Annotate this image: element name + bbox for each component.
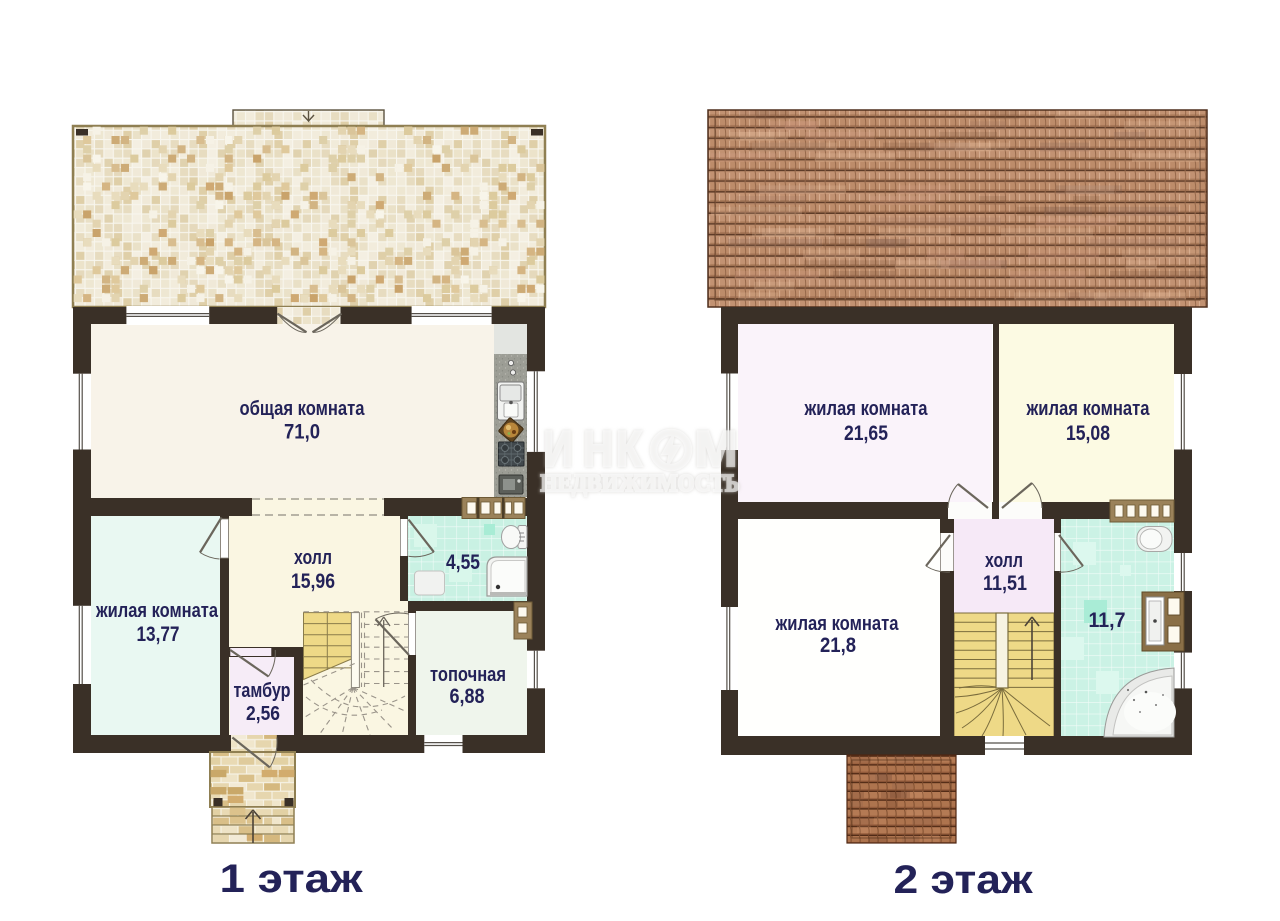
svg-text:15,96: 15,96 (291, 570, 335, 593)
svg-text:М: М (695, 421, 738, 477)
svg-text:1 этаж: 1 этаж (220, 857, 364, 901)
svg-text:11,51: 11,51 (983, 572, 1027, 595)
svg-text:тамбур: тамбур (234, 680, 291, 702)
svg-text:К: К (616, 421, 642, 477)
svg-text:4,55: 4,55 (446, 551, 480, 574)
svg-text:11,7: 11,7 (1089, 609, 1126, 632)
svg-text:Н: Н (584, 421, 613, 477)
svg-text:НЕДВИЖИМОСТЬ: НЕДВИЖИМОСТЬ (541, 470, 740, 497)
svg-text:15,08: 15,08 (1066, 422, 1110, 445)
svg-text:топочная: топочная (430, 663, 506, 686)
svg-text:21,8: 21,8 (820, 634, 856, 657)
svg-text:2 этаж: 2 этаж (894, 858, 1034, 902)
svg-text:71,0: 71,0 (284, 421, 320, 444)
svg-text:2,56: 2,56 (246, 702, 280, 725)
svg-text:общая комната: общая комната (240, 397, 365, 420)
svg-text:жилая комната: жилая комната (95, 600, 219, 622)
svg-text:холл: холл (294, 546, 332, 569)
svg-text:И: И (544, 421, 573, 477)
svg-text:21,65: 21,65 (844, 422, 888, 445)
svg-text:жилая комната: жилая комната (1026, 397, 1150, 420)
svg-text:жилая комната: жилая комната (775, 612, 899, 635)
svg-text:жилая комната: жилая комната (804, 397, 928, 420)
svg-text:6,88: 6,88 (450, 685, 485, 708)
svg-text:13,77: 13,77 (137, 623, 180, 646)
svg-text:холл: холл (985, 549, 1023, 572)
